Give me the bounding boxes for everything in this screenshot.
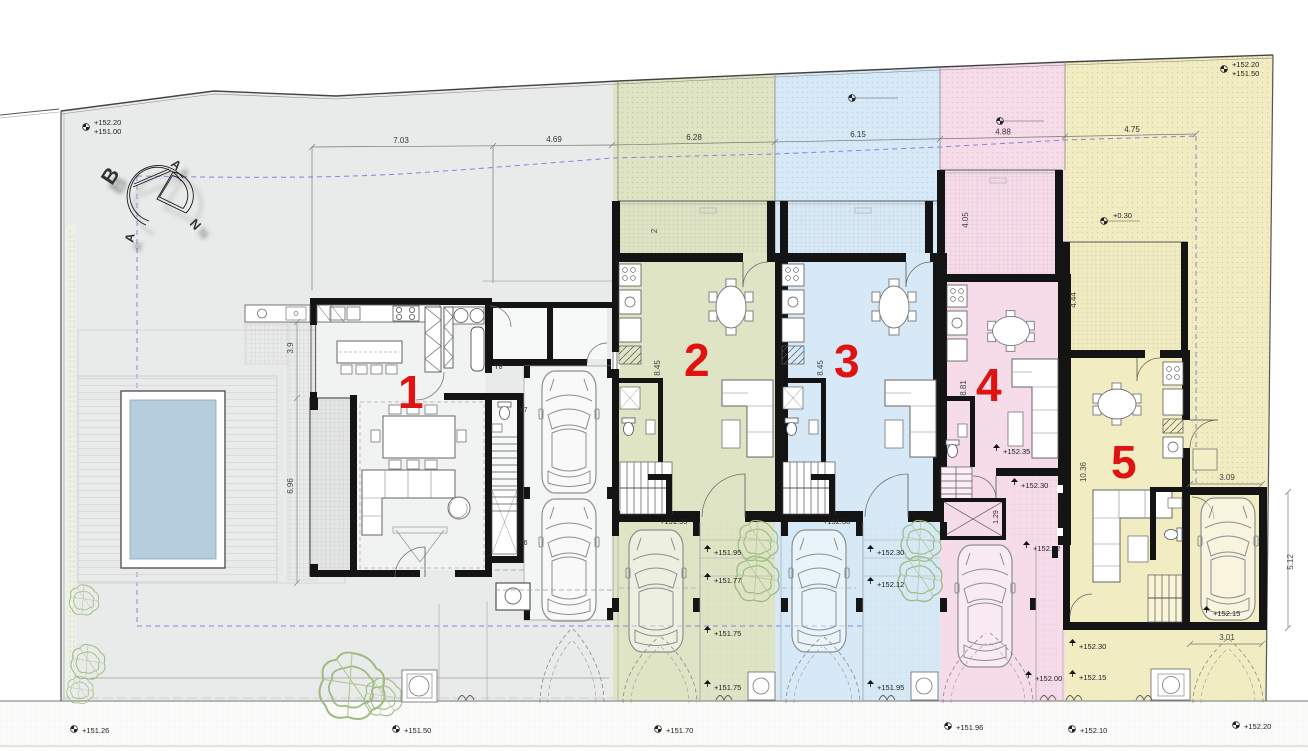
- svg-text:4: 4: [976, 359, 1002, 411]
- svg-text:10.36: 10.36: [1079, 461, 1088, 482]
- svg-text:+152.12: +152.12: [877, 580, 904, 589]
- svg-text:6.28: 6.28: [686, 133, 702, 142]
- svg-text:1.29: 1.29: [993, 510, 1000, 524]
- svg-text:+151.95: +151.95: [714, 548, 741, 557]
- svg-text:+152.30: +152.30: [823, 517, 850, 526]
- svg-text:4.05: 4.05: [961, 212, 970, 228]
- svg-text:+151.95: +151.95: [660, 517, 687, 526]
- svg-text:+152.30: +152.30: [1079, 642, 1106, 651]
- svg-text:5: 5: [1111, 436, 1137, 488]
- svg-text:+151.26: +151.26: [82, 726, 109, 735]
- svg-text:+152.35: +152.35: [1003, 447, 1030, 456]
- svg-text:+152.20: +152.20: [1244, 722, 1271, 731]
- svg-text:+152.10: +152.10: [1080, 726, 1107, 735]
- svg-text:2: 2: [684, 334, 710, 386]
- svg-text:+152.30: +152.30: [877, 548, 904, 557]
- svg-text:+152.15: +152.15: [1213, 609, 1240, 618]
- svg-text:5.12: 5.12: [1286, 554, 1295, 570]
- svg-text:8.45: 8.45: [653, 360, 662, 376]
- svg-text:8.81: 8.81: [959, 380, 968, 396]
- svg-text:+151.70: +151.70: [666, 726, 693, 735]
- svg-text:+0.30: +0.30: [1113, 211, 1132, 220]
- svg-text:3.9: 3.9: [286, 342, 295, 354]
- svg-text:3: 3: [834, 335, 860, 387]
- svg-text:6.15: 6.15: [850, 130, 866, 139]
- svg-text:+151.77: +151.77: [714, 576, 741, 585]
- svg-text:Y7: Y7: [519, 407, 528, 414]
- svg-text:3.09: 3.09: [1219, 473, 1235, 482]
- svg-text:+151.50: +151.50: [404, 726, 431, 735]
- svg-text:+151.75: +151.75: [714, 629, 741, 638]
- svg-text:8.45: 8.45: [816, 360, 825, 376]
- svg-text:6.96: 6.96: [286, 478, 295, 494]
- svg-text:2: 2: [650, 228, 659, 233]
- svg-text:+151.50: +151.50: [1232, 69, 1259, 78]
- svg-text:Y8: Y8: [494, 364, 503, 371]
- svg-text:Y6: Y6: [519, 540, 528, 547]
- svg-text:+152.20: +152.20: [1232, 60, 1259, 69]
- svg-text:4.44: 4.44: [1069, 292, 1078, 308]
- svg-text:+151.00: +151.00: [94, 127, 121, 136]
- svg-text:+152.20: +152.20: [94, 118, 121, 127]
- svg-text:4.88: 4.88: [995, 128, 1011, 137]
- svg-text:+151.96: +151.96: [956, 723, 983, 732]
- svg-text:+152.15: +152.15: [1079, 673, 1106, 682]
- svg-text:7.03: 7.03: [393, 136, 409, 145]
- svg-text:4.75: 4.75: [1124, 125, 1140, 134]
- svg-text:3.01: 3.01: [1219, 633, 1235, 642]
- svg-text:+151.75: +151.75: [714, 683, 741, 692]
- svg-text:4.69: 4.69: [546, 135, 562, 144]
- svg-text:1: 1: [398, 366, 424, 418]
- svg-text:+151.95: +151.95: [877, 683, 904, 692]
